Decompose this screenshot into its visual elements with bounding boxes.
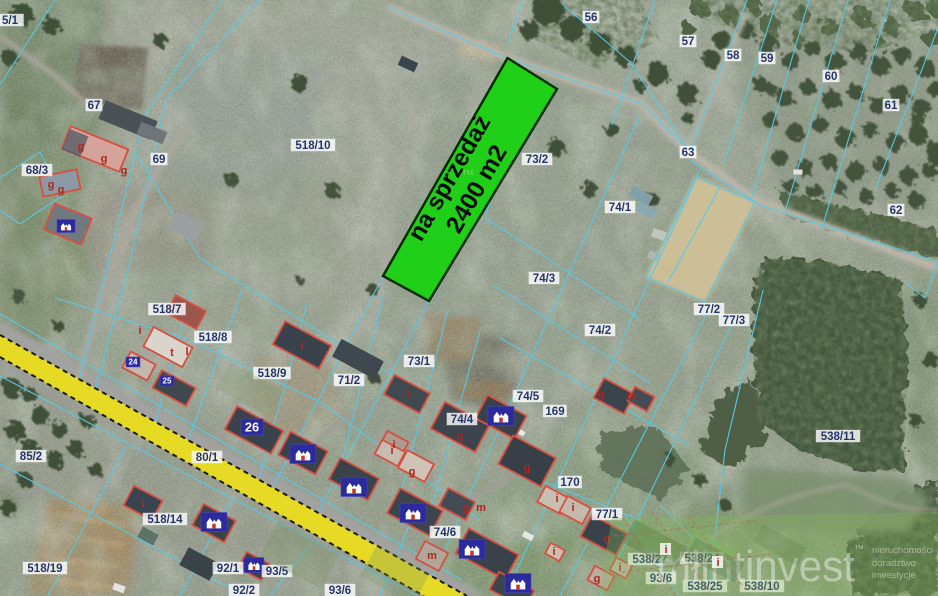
svg-text:g: g [598, 389, 605, 401]
svg-text:518/7: 518/7 [153, 304, 182, 316]
svg-text:71/2: 71/2 [338, 375, 360, 387]
svg-text:60: 60 [825, 71, 838, 83]
svg-text:59: 59 [761, 53, 774, 65]
svg-text:518/14: 518/14 [147, 514, 183, 526]
svg-text:i: i [141, 498, 144, 510]
svg-text:t: t [170, 347, 174, 359]
svg-text:g: g [78, 141, 85, 153]
svg-text:i: i [571, 502, 574, 514]
svg-text:i: i [716, 557, 719, 569]
svg-text:™: ™ [854, 544, 864, 555]
svg-text:67: 67 [88, 100, 101, 112]
svg-text:i: i [390, 445, 393, 457]
svg-text:m: m [427, 550, 437, 562]
svg-text:62: 62 [890, 205, 903, 217]
svg-text:g: g [457, 431, 464, 443]
svg-text:77/2: 77/2 [698, 304, 720, 316]
svg-text:g: g [409, 466, 416, 478]
svg-text:g: g [101, 153, 108, 165]
svg-text:68/3: 68/3 [26, 165, 48, 177]
svg-text:g: g [48, 179, 55, 191]
svg-text:77/3: 77/3 [723, 315, 745, 327]
svg-text:g: g [463, 502, 470, 514]
svg-text:518/10: 518/10 [295, 140, 330, 152]
svg-text:i: i [138, 325, 141, 337]
svg-text:61: 61 [885, 100, 898, 112]
svg-text:170: 170 [560, 477, 579, 489]
svg-text:m: m [476, 502, 486, 514]
svg-text:85/2: 85/2 [20, 451, 42, 463]
svg-text:58: 58 [727, 50, 740, 62]
svg-text:73/2: 73/2 [526, 154, 548, 166]
svg-text:i: i [664, 544, 667, 556]
svg-text:m: m [627, 391, 637, 403]
svg-text:g: g [58, 184, 65, 196]
svg-text:518/8: 518/8 [199, 332, 228, 344]
svg-text:24: 24 [129, 358, 138, 367]
svg-text:i: i [552, 546, 555, 558]
svg-text:57: 57 [682, 36, 695, 48]
svg-text:56: 56 [585, 12, 598, 24]
svg-text:i: i [300, 341, 303, 353]
svg-text:i: i [555, 493, 558, 505]
svg-text:69: 69 [153, 154, 166, 166]
svg-text:g: g [524, 462, 531, 474]
svg-text:518/19: 518/19 [27, 563, 62, 575]
svg-text:l: l [185, 346, 188, 358]
svg-text:538/11: 538/11 [821, 431, 856, 443]
svg-text:92/1: 92/1 [217, 563, 240, 575]
svg-text:74/3: 74/3 [533, 273, 555, 285]
svg-text:74/6: 74/6 [434, 527, 456, 539]
svg-text:518/9: 518/9 [258, 368, 287, 380]
svg-text:169: 169 [545, 406, 564, 418]
svg-text:doradztwo: doradztwo [872, 558, 916, 569]
svg-text:25: 25 [163, 377, 172, 386]
svg-text:g: g [594, 573, 601, 585]
svg-text:92/2: 92/2 [233, 585, 255, 596]
svg-text:5/1: 5/1 [2, 15, 19, 27]
svg-text:inwestycje: inwestycje [872, 570, 916, 581]
svg-text:l: l [406, 389, 409, 401]
svg-text:26: 26 [245, 419, 259, 434]
svg-text:74/2: 74/2 [589, 325, 611, 337]
svg-text:80/1: 80/1 [196, 452, 219, 464]
svg-text:63: 63 [682, 147, 695, 159]
svg-text:93/6: 93/6 [329, 585, 351, 596]
svg-text:73/1: 73/1 [408, 356, 431, 368]
svg-text:74/1: 74/1 [609, 202, 632, 214]
svg-text:74/5: 74/5 [517, 391, 540, 403]
svg-text:74/4: 74/4 [451, 414, 474, 426]
svg-text:g: g [121, 165, 128, 177]
svg-text:nieruchomości: nieruchomości [872, 545, 933, 556]
